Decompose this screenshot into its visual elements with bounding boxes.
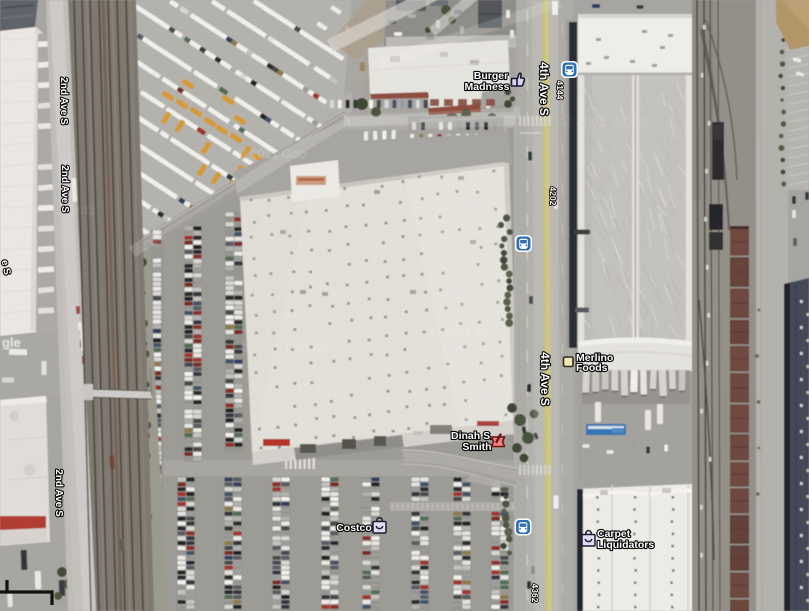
svg-text:2nd Ave S: 2nd Ave S [53,469,64,517]
svg-text:4202: 4202 [548,187,558,206]
svg-text:2nd Ave S: 2nd Ave S [58,77,69,125]
svg-text:Smith: Smith [462,441,491,453]
svg-text:gle: gle [2,335,21,350]
svg-text:Madness: Madness [465,81,510,93]
svg-text:e S: e S [0,259,12,276]
svg-text:© 2011 G: © 2011 G [430,324,485,339]
svg-text:© 2011 Goog: © 2011 Goog [560,113,648,130]
svg-text:© 2011 Goo: © 2011 Goo [237,146,306,161]
svg-text:© 2011 Google: © 2011 Google [240,340,327,355]
svg-text:Liquidators: Liquidators [597,539,654,551]
svg-text:4362: 4362 [530,584,540,603]
svg-text:Foods: Foods [576,362,608,374]
svg-text:4th Ave S: 4th Ave S [537,62,551,116]
svg-text:2nd Ave S: 2nd Ave S [59,165,70,213]
svg-text:4144: 4144 [555,81,565,100]
svg-text:4th Ave S: 4th Ave S [538,352,552,406]
svg-text:Costco: Costco [336,522,372,534]
